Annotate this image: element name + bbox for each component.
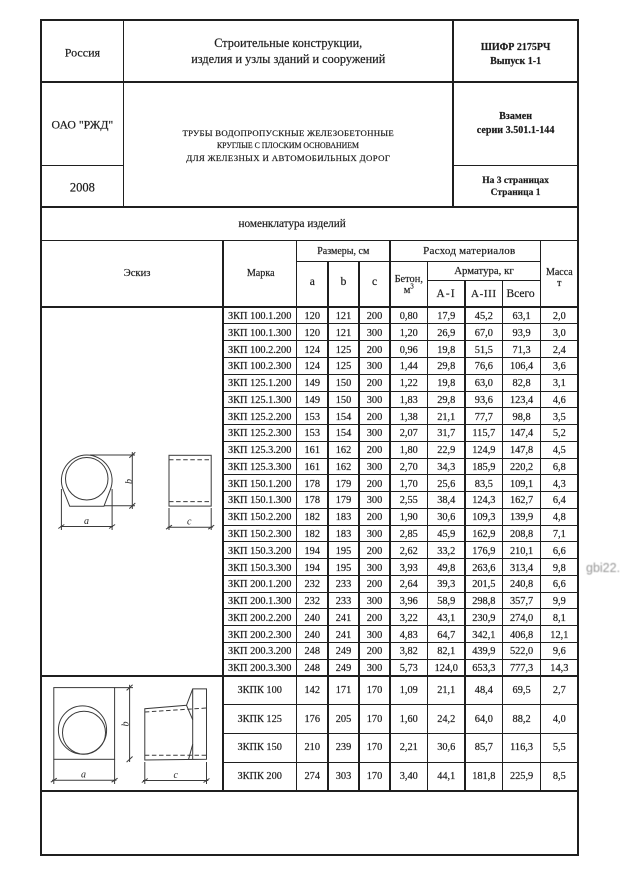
svg-text:b: b bbox=[121, 722, 132, 727]
svg-text:a: a bbox=[84, 516, 89, 527]
svg-text:b: b bbox=[124, 479, 135, 484]
svg-text:a: a bbox=[81, 770, 86, 781]
svg-text:c: c bbox=[174, 770, 179, 781]
svg-text:c: c bbox=[187, 517, 192, 528]
